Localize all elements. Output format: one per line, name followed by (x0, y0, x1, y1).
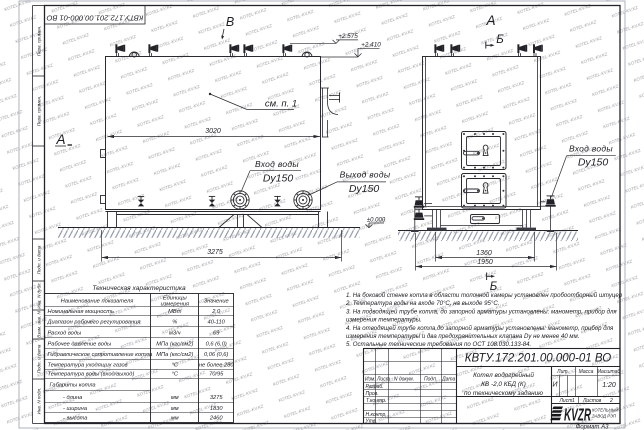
svg-text:Габариты котла: Габариты котла (50, 382, 96, 388)
svg-text:см. п. 1: см. п. 1 (265, 99, 297, 110)
svg-text:5. Остальные технические тр: 5. Остальные технические требования по О… (346, 341, 531, 348)
svg-text:Подп. и дата: Подп. и дата (37, 245, 42, 274)
svg-text:1. На боковой стенке котла: 1. На боковой стенке котла в области топ… (346, 292, 623, 299)
svg-text:Перв. примен.: Перв. примен. (37, 26, 42, 57)
svg-text:Инв. N дубл.: Инв. N дубл. (37, 282, 42, 309)
svg-text:Б: Б (496, 34, 504, 46)
svg-text:°С: °С (172, 363, 179, 369)
svg-text:КВТУ.172.201.00.000-01 ВО: КВТУ.172.201.00.000-01 ВО (47, 14, 144, 23)
svg-text:70/95: 70/95 (209, 372, 224, 378)
svg-text:3275: 3275 (210, 395, 223, 401)
svg-text:измерения температуры и два: измерения температуры и два предохраните… (346, 333, 579, 340)
svg-text:3275: 3275 (207, 249, 223, 256)
svg-text:Разраб.: Разраб. (366, 384, 384, 390)
svg-text:2: 2 (609, 398, 613, 404)
svg-text:ЗАВОД РЭП: ЗАВОД РЭП (592, 414, 617, 419)
svg-text:м3/ч: м3/ч (169, 330, 181, 336)
svg-text:0,6 (6,0): 0,6 (6,0) (206, 341, 227, 347)
svg-text:КОТЕЛЬНЫЙ: КОТЕЛЬНЫЙ (592, 408, 618, 413)
svg-text:Формат А3: Формат А3 (576, 424, 609, 430)
svg-text:%: % (172, 320, 177, 326)
svg-text:Dy150: Dy150 (263, 173, 294, 185)
svg-text:Температура уходящих газов: Температура уходящих газов (48, 363, 128, 369)
svg-text:Дата: Дата (441, 377, 455, 383)
svg-text:Утв.: Утв. (366, 418, 377, 424)
svg-text:Значение: Значение (204, 298, 229, 304)
svg-text:Номинальная мощность: Номинальная мощность (48, 309, 114, 315)
svg-text:не более 280: не более 280 (199, 363, 235, 369)
svg-text:Котел водогрейный: Котел водогрейный (473, 371, 534, 379)
svg-text:Перв. примен.: Перв. примен. (37, 96, 42, 127)
svg-text:МПа (кгс/см2): МПа (кгс/см2) (156, 352, 193, 358)
svg-text:КВ -2,0 КБД (К): КВ -2,0 КБД (К) (481, 381, 526, 388)
svg-text:Подп. и дата: Подп. и дата (37, 344, 42, 373)
svg-text:1: 1 (572, 398, 575, 404)
svg-text:мм: мм (171, 406, 179, 412)
svg-text:Листов: Листов (582, 398, 602, 404)
svg-text:по техническому заданию: по техническому заданию (464, 389, 543, 397)
svg-text:Техническая характеристика: Техническая характеристика (92, 285, 186, 292)
svg-text:Рабочее давление воды: Рабочее давление воды (48, 341, 113, 347)
svg-text:°С: °С (172, 372, 179, 378)
svg-text:измерения: измерения (161, 301, 189, 307)
svg-text:Гидравлическое сопротивление: Гидравлическое сопротивление котла (48, 352, 153, 358)
svg-text:1830: 1830 (210, 406, 223, 412)
svg-text:Диапазон рабочего регулирова: Диапазон рабочего регулирования (47, 320, 141, 326)
svg-text:Лист: Лист (559, 398, 573, 404)
svg-text:МВт: МВт (168, 309, 182, 315)
svg-text:- длина: - длина (63, 395, 82, 401)
svg-text:А: А (55, 132, 65, 147)
svg-text:1360: 1360 (476, 250, 492, 257)
svg-text:Масштаб: Масштаб (597, 369, 621, 375)
svg-text:Масса: Масса (579, 369, 594, 375)
svg-text:+2.410: +2.410 (361, 42, 381, 49)
svg-text:Взам. инв. N: Взам. инв. N (37, 310, 42, 337)
svg-text:Вход воды: Вход воды (255, 159, 299, 169)
svg-text:Расход воды: Расход воды (48, 330, 82, 336)
svg-text:3020: 3020 (205, 128, 221, 135)
svg-text:мм: мм (171, 416, 179, 422)
svg-text:Н.контр.: Н.контр. (366, 412, 387, 418)
svg-text:Изм.: Изм. (365, 377, 376, 383)
svg-text:40-110: 40-110 (208, 320, 226, 326)
svg-text:3. На подводящей трубе кот: 3. На подводящей трубе котла, до запорно… (346, 308, 617, 315)
svg-text:измерения температуры.: измерения температуры. (346, 317, 422, 324)
svg-text:2,0: 2,0 (211, 309, 221, 315)
svg-text:Лист: Лист (376, 377, 390, 383)
svg-text:2. Температура воды на вхо: 2. Температура воды на входе 70°С, на вы… (345, 300, 499, 307)
svg-text:Выход воды: Выход воды (340, 170, 391, 180)
svg-text:- высота: - высота (63, 416, 87, 422)
svg-text:Вход воды: Вход воды (569, 144, 613, 154)
svg-text:±0.000: ±0.000 (367, 218, 386, 224)
svg-text:KVZR: KVZR (564, 405, 591, 425)
svg-text:КВТУ.172.201.00.000-01 ВО: КВТУ.172.201.00.000-01 ВО (465, 353, 612, 365)
svg-text:4. На отводящей трубе котл: 4. На отводящей трубе котла,до запорной … (346, 325, 614, 332)
svg-text:N докум.: N докум. (394, 377, 414, 383)
svg-text:Температура воды (вход/выход: Температура воды (вход/выход) (48, 372, 135, 378)
svg-text:Т.контр.: Т.контр. (366, 398, 386, 404)
svg-text:Пров.: Пров. (366, 391, 379, 397)
svg-text:0,06 (0,6): 0,06 (0,6) (204, 352, 228, 358)
svg-text:Инв. N подл.: Инв. N подл. (37, 388, 42, 415)
svg-text:Наименование показателя: Наименование показателя (61, 298, 134, 304)
svg-text:Dy150: Dy150 (349, 183, 380, 195)
svg-text:А: А (485, 13, 495, 28)
svg-text:мм: мм (171, 395, 179, 401)
svg-text:Лит.: Лит. (556, 369, 569, 375)
svg-text:В: В (226, 15, 234, 29)
svg-text:2460: 2460 (209, 416, 223, 422)
svg-text:Dy150: Dy150 (578, 157, 609, 169)
svg-text:МПа (кгс/см2): МПа (кгс/см2) (156, 341, 193, 347)
svg-text:69: 69 (213, 330, 220, 336)
svg-text:+2.575: +2.575 (338, 33, 358, 40)
svg-text:1950: 1950 (477, 259, 493, 266)
svg-text:1:20: 1:20 (602, 382, 616, 389)
svg-text:- ширина: - ширина (63, 406, 87, 412)
svg-text:Подп.: Подп. (424, 377, 437, 383)
